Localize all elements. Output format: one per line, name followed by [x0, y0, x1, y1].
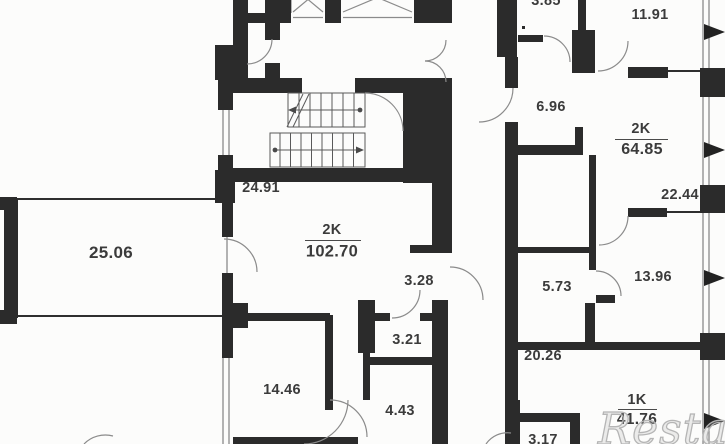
watermark: Restate — [598, 404, 725, 444]
room-label-3-21: 3.21 — [392, 332, 421, 348]
room-label-25-06: 25.06 — [89, 243, 133, 263]
apartment-area-2k-64: 64.85 — [621, 141, 663, 159]
apartment-area-2k-102: 102.70 — [306, 243, 358, 262]
walls — [0, 0, 725, 444]
apartment-divider — [615, 139, 668, 140]
room-label-22-44: 22.44 — [661, 187, 699, 203]
room-label-4-43: 4.43 — [385, 403, 414, 419]
room-label-6-96: 6.96 — [536, 99, 565, 115]
room-label-13-96: 13.96 — [634, 269, 672, 285]
room-label-14-46: 14.46 — [263, 382, 301, 398]
windows — [223, 0, 709, 444]
stair-lower-flight — [270, 133, 365, 167]
room-label-24-91: 24.91 — [242, 180, 280, 196]
room-label-3-28: 3.28 — [404, 273, 433, 289]
elevator-icon — [293, 0, 412, 12]
apartment-divider — [305, 240, 361, 241]
room-label-20-26: 20.26 — [524, 348, 562, 364]
apartment-type-2k-64: 2K — [631, 121, 650, 137]
room-label-3-17: 3.17 — [528, 432, 557, 444]
room-label-3-85: 3.85 — [531, 0, 560, 9]
room-label-5-73: 5.73 — [542, 279, 571, 295]
room-label-11-91: 11.91 — [632, 7, 669, 23]
stair-upper-flight — [287, 93, 365, 127]
floor-plan-drawing — [0, 0, 725, 444]
apartment-type-2k-102: 2K — [322, 222, 341, 238]
floor-plan: 25.06 24.91 3.28 3.21 14.46 4.43 3.85 11… — [0, 0, 725, 444]
